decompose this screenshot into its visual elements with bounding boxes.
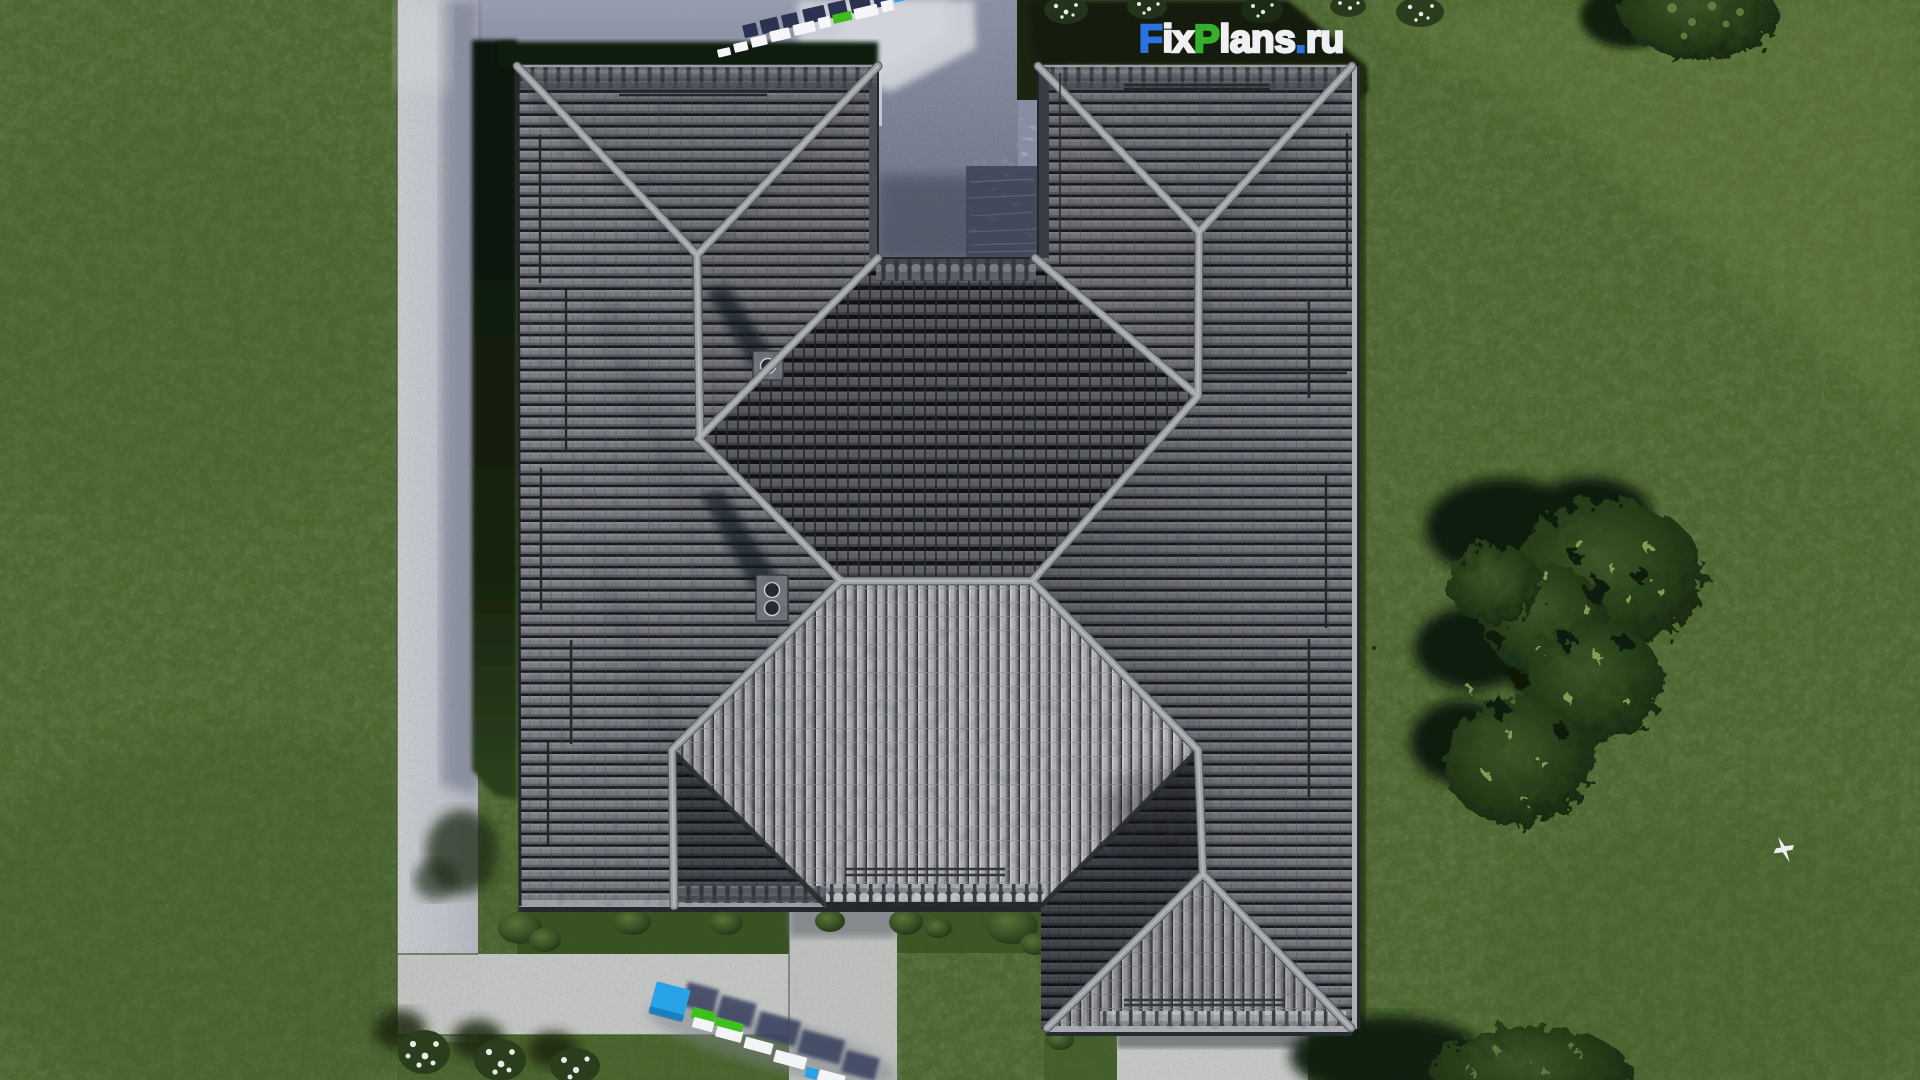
svg-text:FixPlans.ru: FixPlans.ru xyxy=(1139,18,1344,61)
